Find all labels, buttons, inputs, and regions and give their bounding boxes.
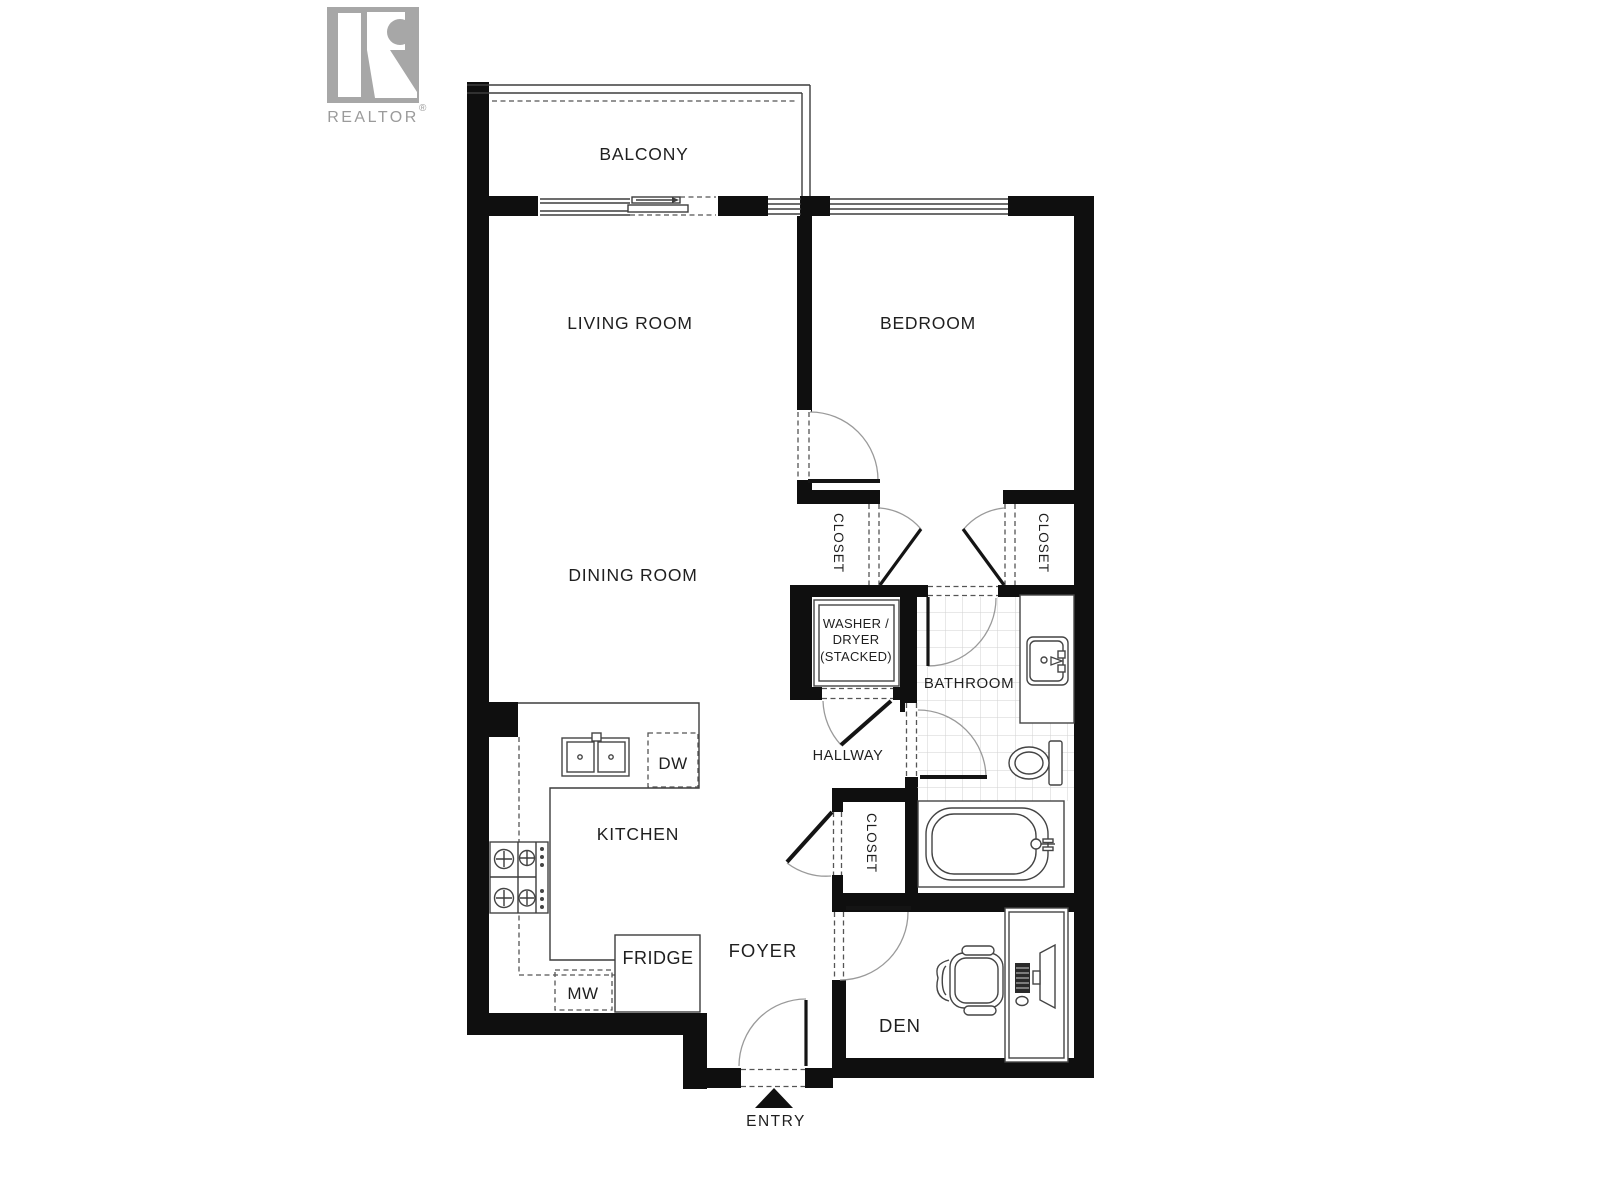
- wall-wd-left: [790, 597, 812, 700]
- stove: [490, 842, 548, 913]
- realtor-logo: REALTOR ®: [327, 7, 427, 126]
- label-fridge: FRIDGE: [622, 948, 693, 968]
- sink-faucet-icon: [592, 733, 601, 741]
- label-kitchen: KITCHEN: [597, 824, 679, 844]
- label-washer-line3: (STACKED): [820, 649, 892, 664]
- label-bedroom: BEDROOM: [880, 313, 976, 333]
- label-living-room: LIVING ROOM: [567, 313, 692, 333]
- wall-right: [1074, 196, 1094, 1078]
- bedroom-window: [830, 199, 1008, 214]
- entry-marker: [755, 1088, 793, 1108]
- wall-top-living-left: [467, 196, 538, 216]
- bedroom-closet-left-door: [880, 508, 921, 585]
- wall-wd-stub-left: [797, 687, 822, 700]
- wall-entry-right: [805, 1068, 833, 1088]
- label-hallway: HALLWAY: [813, 748, 884, 764]
- den-door: [840, 908, 911, 980]
- label-bathroom: BATHROOM: [924, 675, 1014, 692]
- registered-symbol: ®: [419, 103, 427, 114]
- den-furniture: [937, 908, 1068, 1062]
- balcony-railing: [467, 85, 810, 196]
- fridge-box: [615, 935, 700, 1012]
- wall-wd-bathroom: [900, 597, 917, 712]
- label-washer-line2: DRYER: [833, 632, 880, 647]
- window-band-top: [768, 199, 801, 214]
- label-dishwasher: DW: [658, 754, 687, 773]
- foyer-closet-door: [787, 812, 832, 876]
- wall-closet-top-left: [797, 490, 880, 504]
- wall-living-bedroom: [797, 216, 812, 412]
- label-closet-foyer: CLOSET: [864, 813, 879, 873]
- label-washer-line1: WASHER /: [823, 616, 889, 631]
- wall-top-living-right: [718, 196, 768, 216]
- bedroom-closet-right-door: [963, 508, 1004, 585]
- wall-bottom-kitchen: [467, 1013, 707, 1035]
- washer-dryer-door: [823, 701, 891, 745]
- wall-foyer-closet-jamb-top: [832, 788, 843, 812]
- desk: [1005, 908, 1068, 1062]
- wall-closet-top-right: [1003, 490, 1077, 504]
- wall-den-left-lower: [832, 980, 846, 1070]
- bathroom-sink: [1027, 637, 1068, 685]
- wall-kitchen-jut: [489, 702, 518, 737]
- label-microwave: MW: [567, 984, 598, 1003]
- wall-foyer-closet-top: [832, 788, 918, 802]
- balcony-sliding-door: [540, 197, 716, 215]
- office-chair: [937, 946, 1003, 1015]
- label-foyer: FOYER: [729, 940, 798, 961]
- floor-plan-drawing: REALTOR ®: [0, 0, 1600, 1200]
- label-dining-room: DINING ROOM: [568, 565, 697, 585]
- bathroom-fixtures: [917, 595, 1074, 887]
- wall-left: [467, 82, 489, 1035]
- floor-plan-page: REALTOR ®: [0, 0, 1600, 1200]
- entry-arrow-icon: [755, 1088, 793, 1108]
- keyboard-icon: [1015, 963, 1030, 993]
- entry-door: [739, 999, 806, 1066]
- wall-top-bedroom-left: [800, 196, 830, 216]
- kitchen-sink: [562, 733, 629, 776]
- wall-entry-left: [683, 1068, 741, 1088]
- label-balcony: BALCONY: [599, 144, 688, 164]
- label-closet-bedroom-right: CLOSET: [1036, 513, 1051, 573]
- wall-vestibule-bottom-left: [790, 585, 928, 597]
- brand-name: REALTOR: [327, 109, 419, 126]
- label-entry: ENTRY: [746, 1113, 806, 1130]
- tub-faucet-icon: [1031, 839, 1041, 849]
- mouse-icon: [1016, 997, 1028, 1006]
- bedroom-door: [808, 412, 880, 481]
- bathtub: [918, 801, 1064, 887]
- label-closet-bedroom-left: CLOSET: [831, 513, 846, 573]
- label-den: DEN: [879, 1015, 921, 1036]
